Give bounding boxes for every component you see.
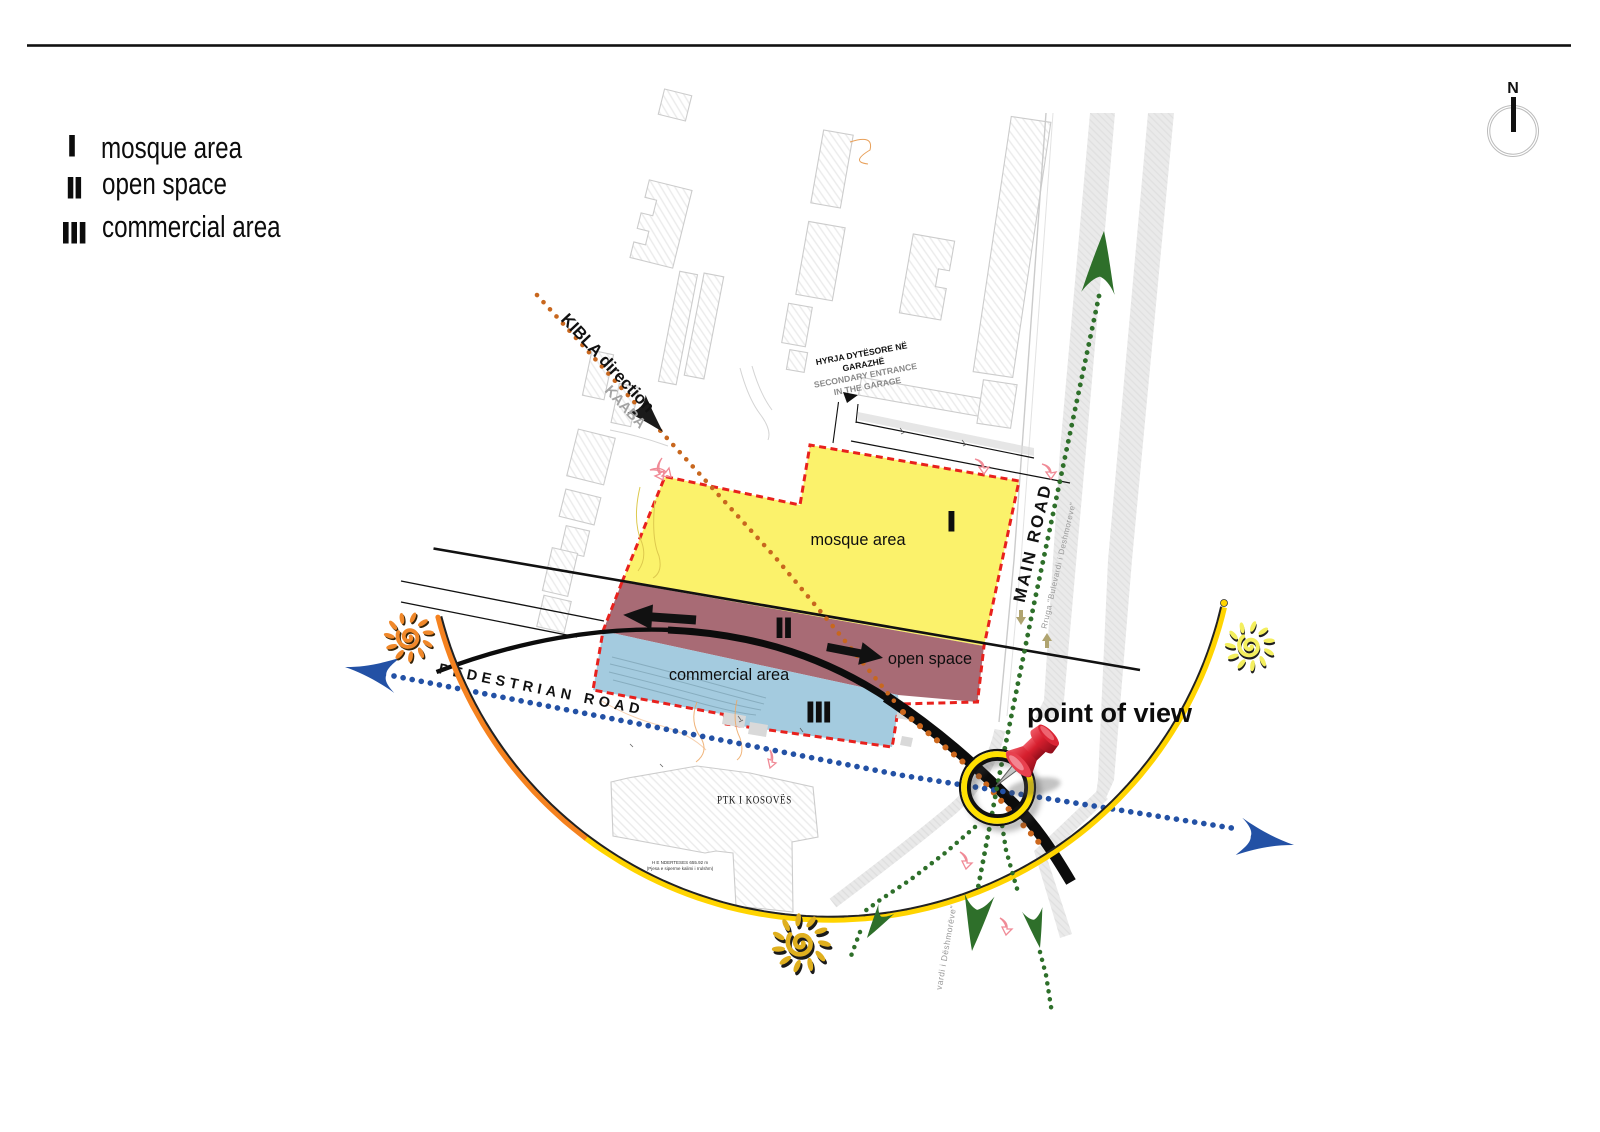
svg-text:(Pjesa e siperme kalimi i rrul: (Pjesa e siperme kalimi i rrulshm)	[647, 866, 714, 871]
svg-text:point of view: point of view	[1027, 698, 1193, 728]
svg-text:H E NDERTESES 655.92 m: H E NDERTESES 655.92 m	[652, 860, 708, 865]
svg-text:mosque area: mosque area	[101, 130, 243, 165]
svg-text:vardi i Dëshmorëve": vardi i Dëshmorëve"	[934, 904, 959, 990]
svg-text:open space: open space	[888, 650, 972, 668]
svg-text:PTK I KOSOVËS: PTK I KOSOVËS	[717, 794, 792, 807]
svg-text:N: N	[1507, 80, 1519, 97]
svg-text:open space: open space	[102, 166, 227, 201]
svg-text:commercial area: commercial area	[669, 666, 790, 684]
svg-text:mosque area: mosque area	[810, 531, 906, 549]
svg-text:commercial area: commercial area	[102, 209, 281, 244]
